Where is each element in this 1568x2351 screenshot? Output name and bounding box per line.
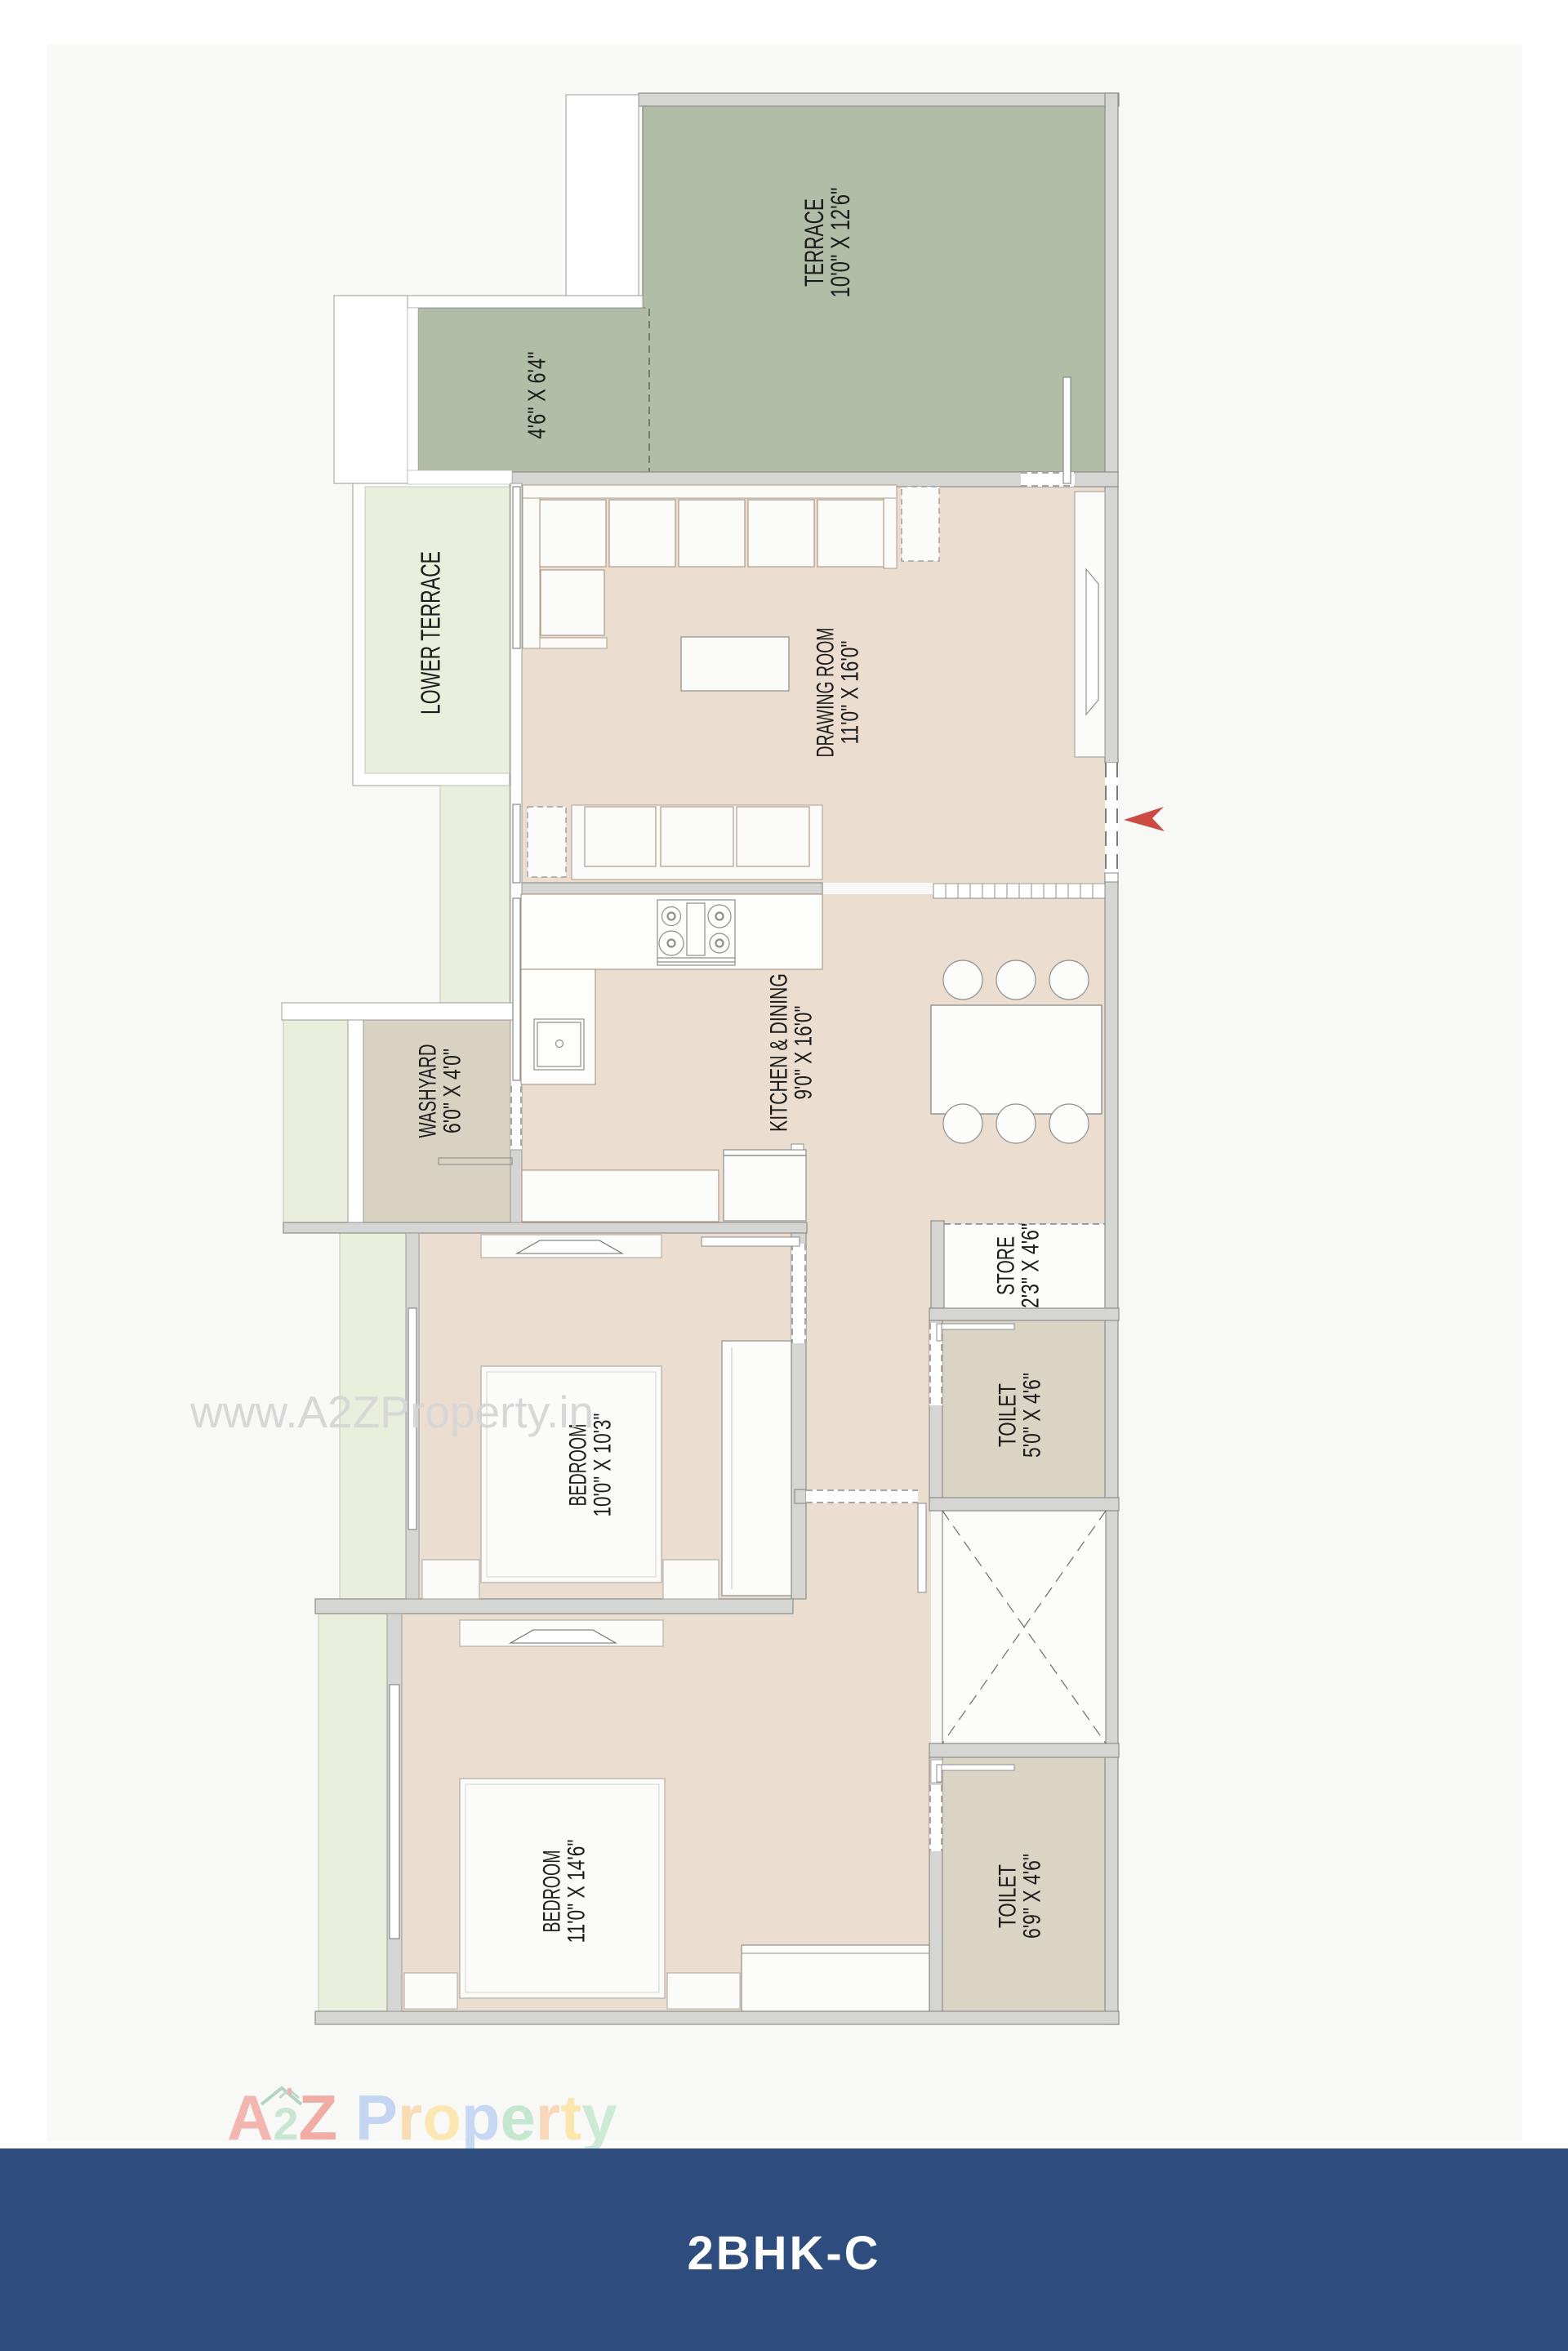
svg-text:5'0" X 4'6": 5'0" X 4'6" bbox=[1019, 1373, 1046, 1458]
svg-text:KITCHEN & DINING: KITCHEN & DINING bbox=[766, 973, 793, 1132]
svg-text:www.A2ZProperty.in: www.A2ZProperty.in bbox=[189, 1387, 594, 1437]
svg-text:TOILET: TOILET bbox=[995, 1864, 1022, 1928]
svg-text:TERRACE: TERRACE bbox=[800, 198, 829, 287]
svg-text:6'0" X 4'0": 6'0" X 4'0" bbox=[439, 1049, 466, 1133]
svg-text:10'0" X 12'6": 10'0" X 12'6" bbox=[826, 188, 855, 298]
svg-text:DRAWING ROOM: DRAWING ROOM bbox=[813, 628, 840, 758]
svg-text:2BHK-C: 2BHK-C bbox=[687, 2227, 880, 2280]
svg-text:STORE: STORE bbox=[993, 1236, 1020, 1295]
svg-text:TOILET: TOILET bbox=[995, 1383, 1022, 1447]
svg-text:6'9" X 4'6": 6'9" X 4'6" bbox=[1019, 1854, 1046, 1939]
svg-text:11'0" X 16'0": 11'0" X 16'0" bbox=[837, 641, 864, 745]
svg-text:11'0" X 14'6": 11'0" X 14'6" bbox=[563, 1840, 590, 1944]
svg-text:LOWER TERRACE: LOWER TERRACE bbox=[416, 551, 446, 715]
svg-text:2'3" X 4'6": 2'3" X 4'6" bbox=[1018, 1223, 1045, 1308]
svg-text:9'0" X 16'0": 9'0" X 16'0" bbox=[791, 1006, 817, 1100]
svg-text:WASHYARD: WASHYARD bbox=[415, 1044, 442, 1138]
svg-text:BEDROOM: BEDROOM bbox=[539, 1850, 566, 1933]
svg-text:4'6" X 6'4": 4'6" X 6'4" bbox=[523, 352, 551, 439]
